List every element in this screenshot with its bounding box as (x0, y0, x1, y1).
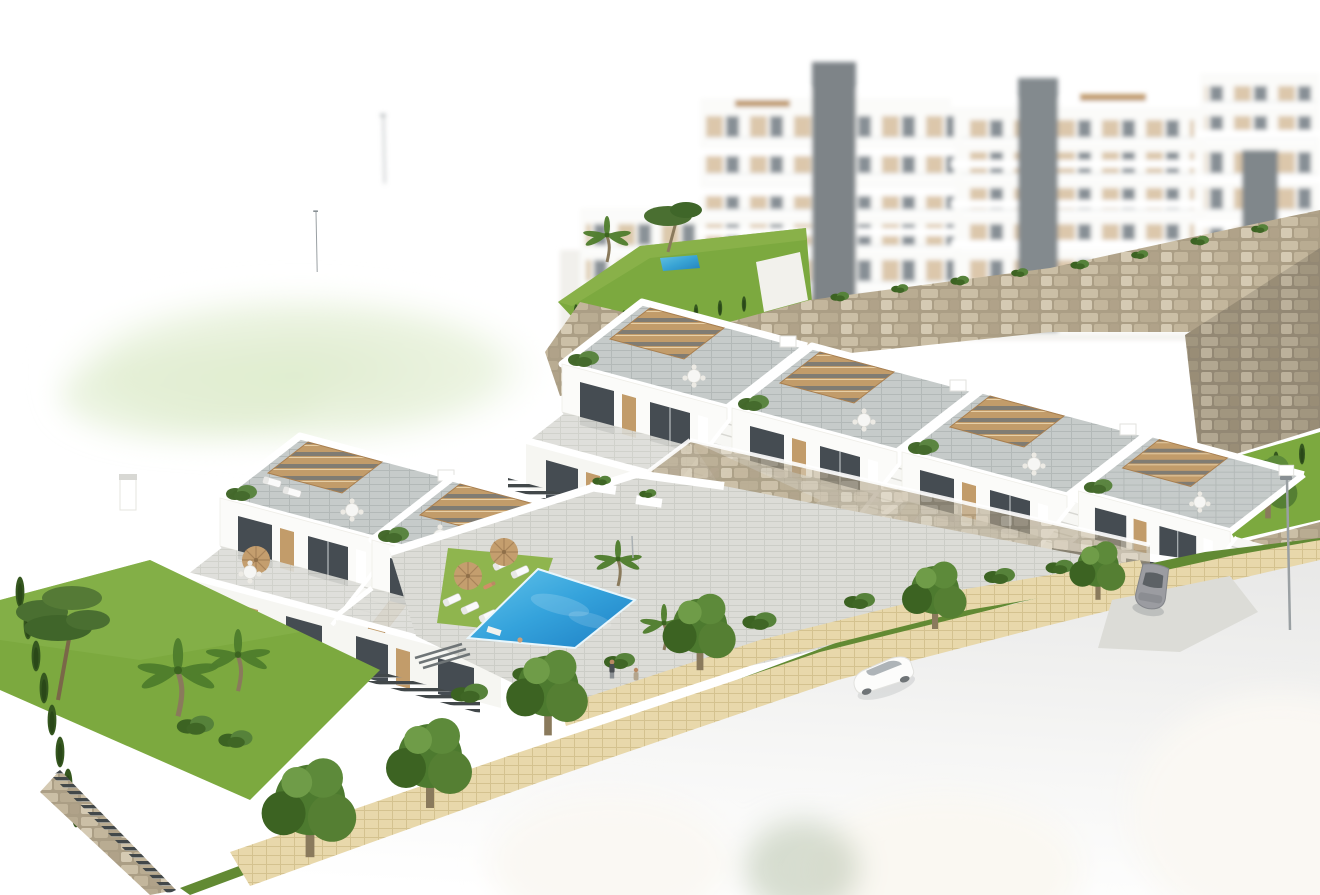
roof-pergola (1080, 94, 1146, 101)
outdoor-shower (632, 536, 633, 558)
architectural-render: Aerial 3D render of a hillside residenti… (0, 0, 1320, 895)
elevator-core (812, 62, 856, 332)
chimney (119, 474, 137, 510)
green-hill-backdrop (45, 288, 555, 452)
cypress (1299, 444, 1305, 465)
render-canvas: Aerial 3D render of a hillside residenti… (0, 0, 1320, 895)
parasol (454, 562, 482, 590)
parasol (490, 538, 518, 566)
roof-pergola (735, 100, 790, 107)
swimmer (517, 637, 522, 642)
